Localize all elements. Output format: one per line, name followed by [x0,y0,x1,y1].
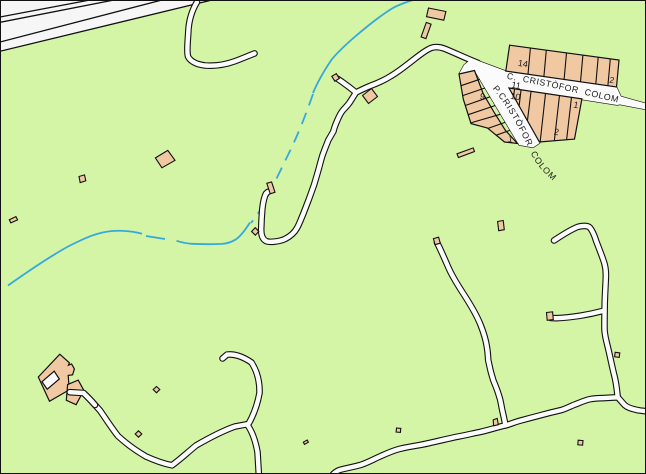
svg-text:10: 10 [510,91,522,103]
svg-text:14: 14 [517,58,529,70]
svg-text:11: 11 [511,80,522,91]
